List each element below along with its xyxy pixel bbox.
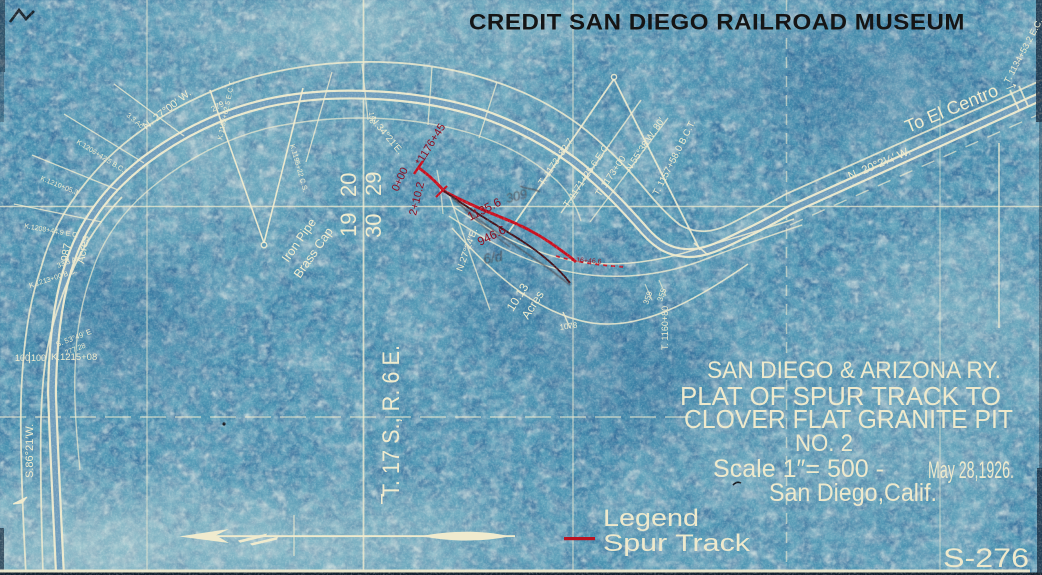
svg-text:29: 29 <box>361 172 386 196</box>
svg-text:Spur Track: Spur Track <box>603 530 751 557</box>
svg-text:100: 100 <box>15 353 30 363</box>
svg-text:20: 20 <box>336 173 361 197</box>
svg-text:T. 1160+80: T. 1160+80 <box>660 306 670 350</box>
svg-text:San Diego,Calif.: San Diego,Calif. <box>769 479 937 507</box>
svg-text:30: 30 <box>361 214 386 238</box>
svg-text:May 28,1926.: May 28,1926. <box>928 457 1014 484</box>
svg-text:S-276: S-276 <box>943 543 1029 573</box>
svg-text:NO. 2: NO. 2 <box>795 430 853 457</box>
svg-text:19: 19 <box>336 213 361 237</box>
svg-text:CREDIT SAN DIEGO RAILROAD MUSE: CREDIT SAN DIEGO RAILROAD MUSEUM <box>469 10 965 35</box>
svg-text:Legend: Legend <box>603 505 699 532</box>
svg-text:100: 100 <box>31 353 46 363</box>
svg-text:S.86°21′W.: S.86°21′W. <box>24 424 36 478</box>
svg-text:155: 155 <box>367 112 375 124</box>
svg-text:SAN DIEGO & ARIZONA RY.: SAN DIEGO & ARIZONA RY. <box>707 357 1001 384</box>
svg-text:T. 17 S., R. 6 E.: T. 17 S., R. 6 E. <box>378 345 405 497</box>
